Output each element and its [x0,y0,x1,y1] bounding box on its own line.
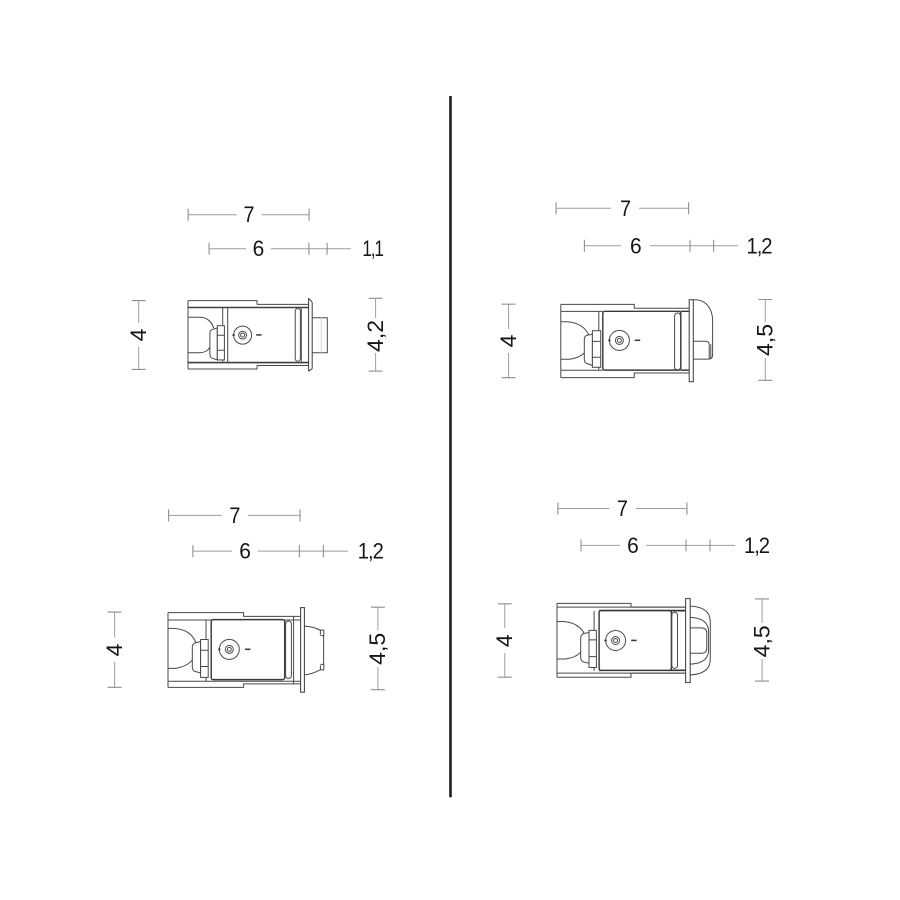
svg-text:1,2: 1,2 [746,235,771,259]
svg-text:6: 6 [239,539,251,564]
svg-text:4: 4 [102,644,126,657]
svg-text:4,2: 4,2 [363,320,387,352]
svg-text:4,5: 4,5 [753,324,777,356]
svg-text:7: 7 [617,497,628,521]
svg-text:1,2: 1,2 [358,540,383,564]
svg-text:6: 6 [630,234,642,259]
svg-text:6: 6 [627,533,639,558]
svg-text:7: 7 [243,203,254,227]
svg-text:7: 7 [229,504,240,528]
svg-text:4,5: 4,5 [366,633,390,665]
svg-text:4: 4 [127,329,151,342]
svg-text:1,2: 1,2 [744,534,769,558]
svg-text:6: 6 [253,237,265,262]
svg-text:7: 7 [620,197,631,221]
svg-text:1,1: 1,1 [362,237,383,262]
svg-text:4,5: 4,5 [750,625,774,657]
svg-text:4: 4 [493,634,517,647]
svg-text:4: 4 [496,334,520,347]
